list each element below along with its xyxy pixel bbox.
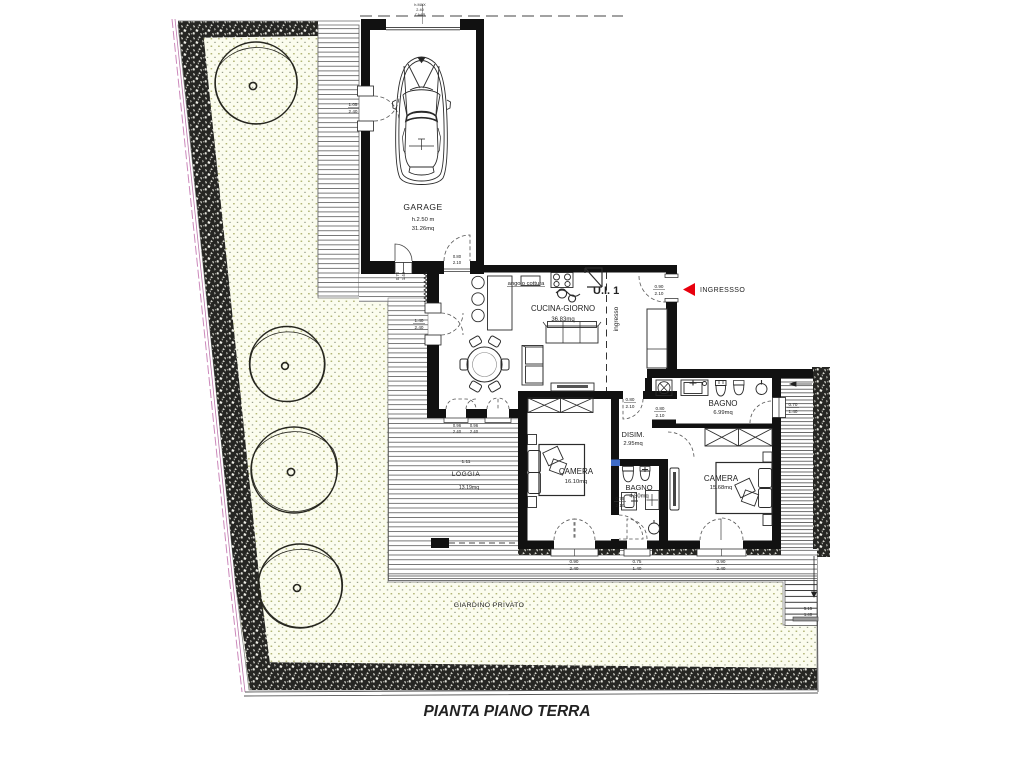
svg-text:CAMERA: CAMERA [704,474,739,483]
svg-text:DISIM.: DISIM. [622,430,645,439]
svg-text:5.15: 5.15 [804,606,813,611]
svg-text:2.10: 2.10 [626,404,635,409]
svg-text:PIANTA PIANO TERRA: PIANTA PIANO TERRA [423,703,590,720]
svg-text:6.99mq: 6.99mq [713,410,732,416]
svg-text:0.80: 0.80 [656,406,665,411]
svg-text:1.11: 1.11 [462,459,471,465]
svg-text:1.40: 1.40 [401,271,406,280]
svg-text:CAMERA: CAMERA [559,467,594,476]
svg-text:36.83mq: 36.83mq [551,317,574,323]
svg-text:1.40: 1.40 [789,409,798,414]
svg-text:BAGNO: BAGNO [709,399,738,408]
svg-text:1.05: 1.05 [349,102,358,107]
svg-text:0.90: 0.90 [570,559,579,564]
svg-text:angolo cottura: angolo cottura [508,281,546,287]
svg-text:2.40: 2.40 [570,566,579,571]
svg-text:2.10: 2.10 [616,503,625,508]
svg-text:LOGGIA: LOGGIA [452,471,481,478]
svg-text:1.40: 1.40 [415,318,424,323]
svg-text:16.10mq: 16.10mq [565,479,588,485]
svg-text:1.40: 1.40 [633,566,642,571]
svg-text:2.40: 2.40 [349,109,358,114]
svg-text:2.40: 2.40 [717,566,726,571]
svg-text:BAGNO: BAGNO [625,483,652,492]
svg-text:h.2.50 m: h.2.50 m [412,217,435,223]
svg-text:2.10: 2.10 [453,260,462,265]
svg-text:CUCINA-GIORNO: CUCINA-GIORNO [531,304,595,313]
svg-text:2.95mq: 2.95mq [623,441,642,447]
svg-text:2.40: 2.40 [453,429,462,434]
svg-text:ingresso: ingresso [613,306,620,331]
svg-text:2.40: 2.40 [415,325,424,330]
svg-text:2.40: 2.40 [416,8,423,12]
svg-text:0.96: 0.96 [453,423,462,428]
svg-text:0.80: 0.80 [453,254,462,259]
svg-text:CAAR: CAAR [415,13,426,17]
svg-text:h.MAX: h.MAX [414,3,426,7]
svg-text:0.90: 0.90 [717,559,726,564]
svg-text:2.40: 2.40 [470,429,479,434]
svg-text:13.19mq: 13.19mq [459,485,479,491]
svg-text:INGRESSSO: INGRESSSO [700,287,745,294]
svg-text:0.80: 0.80 [626,397,635,402]
svg-text:2.10: 2.10 [655,291,664,296]
svg-text:0.75: 0.75 [633,559,642,564]
svg-text:31.26mq: 31.26mq [412,226,435,232]
svg-text:15.68mq: 15.68mq [710,485,733,491]
svg-text:0.70: 0.70 [395,271,400,280]
svg-text:0.75: 0.75 [616,496,625,501]
svg-text:GARAGE: GARAGE [403,202,442,212]
svg-text:2.10: 2.10 [656,413,665,418]
svg-text:0.90: 0.90 [655,284,664,289]
svg-text:GIARDINO PRIVATO: GIARDINO PRIVATO [454,602,525,609]
svg-text:U.I. 1: U.I. 1 [593,285,619,297]
svg-text:1.40: 1.40 [804,612,813,617]
svg-text:0.70: 0.70 [789,402,798,407]
svg-text:4.50mq: 4.50mq [629,494,648,500]
svg-text:0.96: 0.96 [470,423,479,428]
